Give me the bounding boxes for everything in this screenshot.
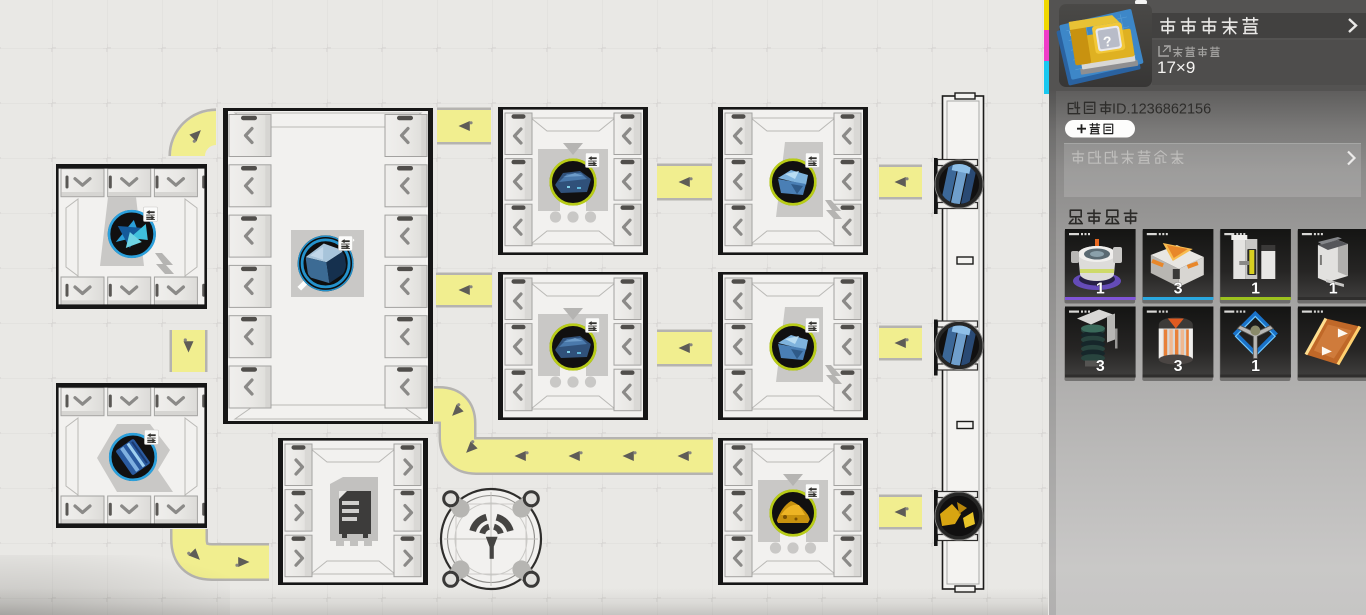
svg-text:3: 3	[1096, 358, 1105, 375]
svg-text:1: 1	[1096, 281, 1105, 298]
svg-text:ID.1236862156: ID.1236862156	[1112, 102, 1211, 118]
svg-text:1: 1	[1251, 281, 1260, 298]
svg-text:...: ...	[1173, 151, 1185, 167]
svg-text:17×9: 17×9	[1157, 58, 1195, 77]
svg-text:1: 1	[1329, 281, 1338, 298]
svg-text:1: 1	[1251, 358, 1260, 375]
svg-text:3: 3	[1174, 281, 1183, 298]
svg-text:3: 3	[1174, 358, 1183, 375]
